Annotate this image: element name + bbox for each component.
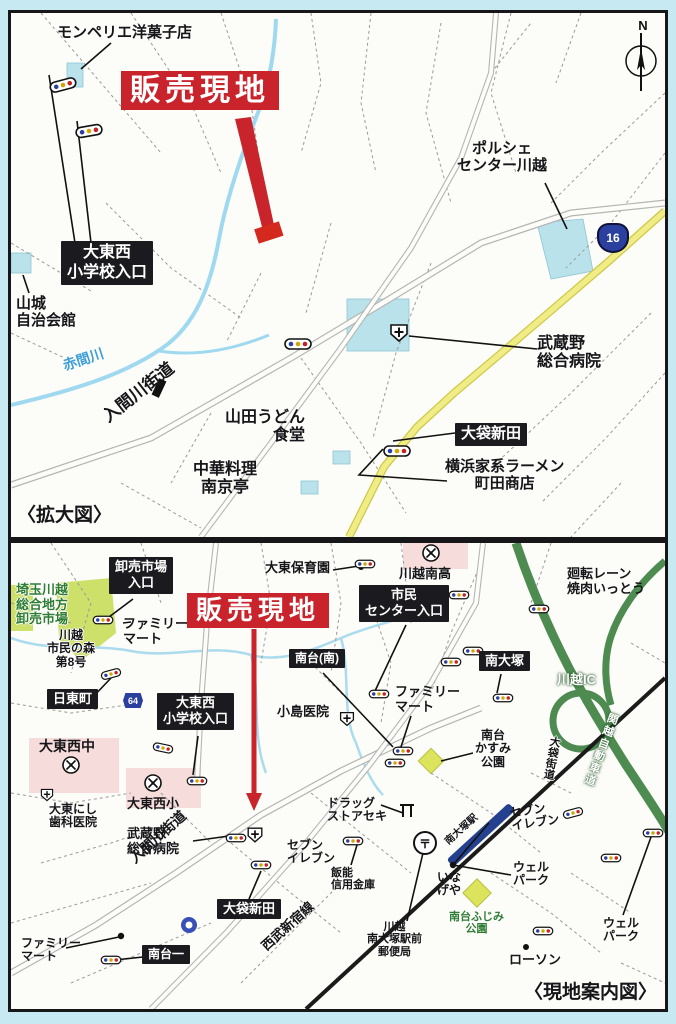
guide-map-caption: 〈現地案内図〉 xyxy=(524,982,657,1003)
yamada-building xyxy=(333,451,350,464)
porsche-building xyxy=(537,219,593,279)
station-band xyxy=(447,803,516,867)
route-64-badge-icon: 64 xyxy=(123,693,143,708)
guide-map-panel: 卸売市場 入口埼玉川越 総合地方 卸売市場川越 市民の森 第8号ファミリー マー… xyxy=(8,540,668,1012)
kasumi-park-area xyxy=(418,748,443,773)
hospital-icon xyxy=(248,828,262,842)
route-16-number: 16 xyxy=(606,231,619,245)
nankintei-building xyxy=(301,481,318,494)
junior-high-school-icon xyxy=(63,757,79,773)
route16-road xyxy=(349,211,665,537)
elementary-grounds xyxy=(126,768,201,808)
route-64-number: 64 xyxy=(128,696,138,706)
traffic-light-icon xyxy=(49,77,77,93)
traffic-light-icon xyxy=(285,339,311,349)
traffic-light-icon xyxy=(75,124,102,138)
elementary-school-icon xyxy=(145,775,161,791)
compass-icon xyxy=(626,33,656,91)
rail-crossing-icon xyxy=(152,378,167,398)
clinic-icon xyxy=(341,713,354,726)
traffic-lights xyxy=(93,560,663,964)
blue-emblem-icon xyxy=(181,917,197,933)
river-lines xyxy=(11,19,276,405)
site-callout xyxy=(235,117,284,244)
post-office-icon: 〒 xyxy=(413,831,437,855)
high-school-icon xyxy=(423,545,439,561)
guide-map-drawing xyxy=(11,543,665,1009)
enlarged-map-panel: モンペリエ洋菓子店販売現地ポルシェ センター川越大東西 小学校入口山城 自治会館… xyxy=(8,10,668,540)
yamashiro-building xyxy=(11,253,31,273)
market-area-west xyxy=(11,585,33,631)
fujimi-park-area xyxy=(463,879,491,907)
route-16-shield-icon: 16 xyxy=(597,223,629,253)
compass-n-label: N xyxy=(638,19,647,32)
traffic-light-icon xyxy=(384,446,410,456)
enlarged-map-caption: 〈拡大図〉 xyxy=(17,505,112,526)
dental-clinic-icon xyxy=(41,789,52,800)
drugstore-marker-icon xyxy=(400,805,414,817)
expressway xyxy=(516,543,665,835)
enlarged-map-drawing xyxy=(11,13,665,537)
compass: N xyxy=(623,19,663,32)
site-parcel xyxy=(254,221,283,243)
